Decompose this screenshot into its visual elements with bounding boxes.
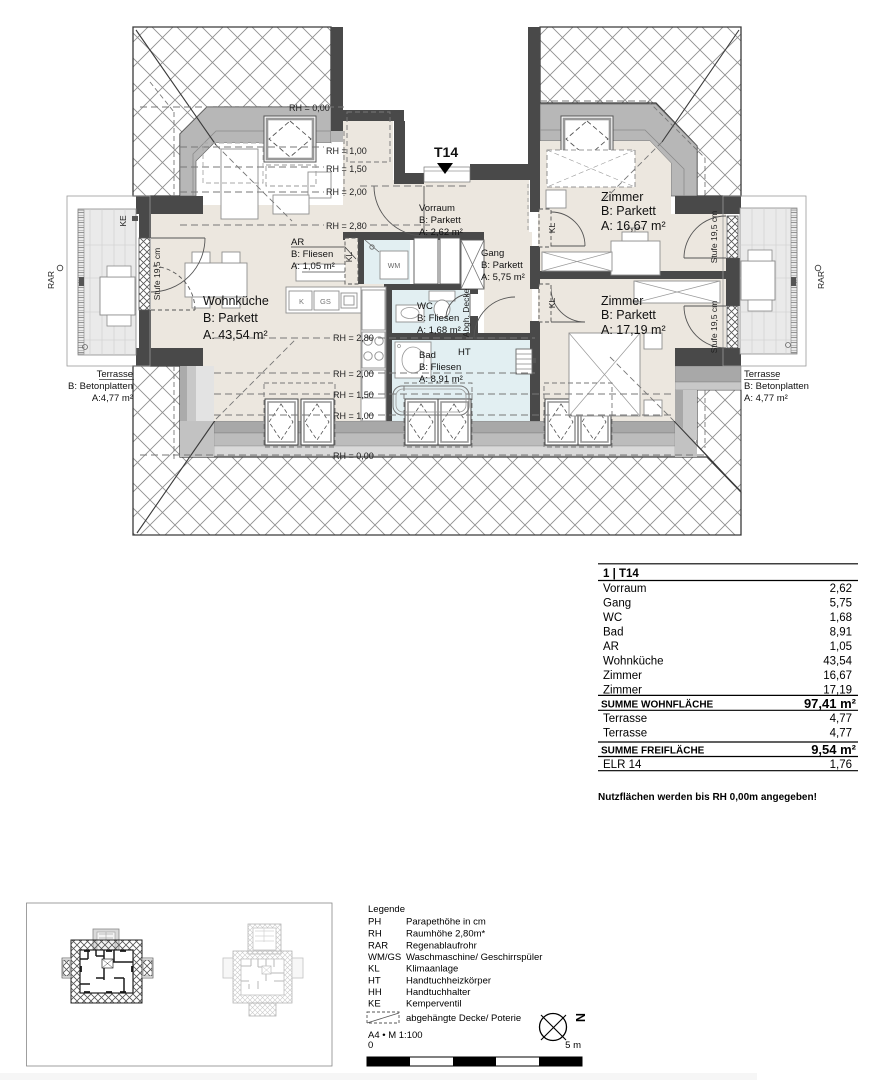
svg-text:N: N xyxy=(573,1013,587,1022)
svg-text:B: Parkett: B: Parkett xyxy=(203,311,258,325)
svg-text:Kemperventil: Kemperventil xyxy=(406,999,461,1010)
svg-text:KE: KE xyxy=(368,999,381,1010)
svg-text:KL: KL xyxy=(368,964,380,975)
svg-text:1,76: 1,76 xyxy=(830,759,852,771)
svg-text:ELR 14: ELR 14 xyxy=(603,759,642,771)
svg-text:Terrasse: Terrasse xyxy=(603,728,647,740)
svg-text:T14: T14 xyxy=(434,144,458,160)
svg-text:RH = 1,00: RH = 1,00 xyxy=(326,146,367,156)
svg-text:Terrasse: Terrasse xyxy=(603,713,647,725)
svg-text:B: Fliesen: B: Fliesen xyxy=(419,362,461,373)
svg-text:A: 1,68 m²: A: 1,68 m² xyxy=(417,325,461,336)
svg-text:WC: WC xyxy=(603,612,622,624)
svg-text:Gang: Gang xyxy=(603,598,631,610)
svg-text:Zimmer: Zimmer xyxy=(601,294,643,308)
svg-text:SUMME FREIFLÄCHE: SUMME FREIFLÄCHE xyxy=(601,744,705,757)
svg-text:RH = 0,00: RH = 0,00 xyxy=(333,451,374,461)
svg-text:Vorraum: Vorraum xyxy=(603,583,646,595)
svg-text:RH = 1,50: RH = 1,50 xyxy=(326,164,367,174)
svg-text:8,91: 8,91 xyxy=(830,627,852,639)
svg-text:Raumhöhe 2,80m*: Raumhöhe 2,80m* xyxy=(406,929,486,940)
svg-text:1,68: 1,68 xyxy=(830,612,852,624)
svg-text:Stufe 19,5 cm: Stufe 19,5 cm xyxy=(709,211,719,263)
svg-text:Wohnküche: Wohnküche xyxy=(603,656,664,668)
svg-text:Bad: Bad xyxy=(603,627,623,639)
svg-text:Nutzflächen werden bis RH 0,00: Nutzflächen werden bis RH 0,00m angegebe… xyxy=(598,792,817,803)
svg-text:5,75: 5,75 xyxy=(830,598,852,610)
svg-text:Vorraum: Vorraum xyxy=(419,203,455,214)
svg-text:GS: GS xyxy=(320,297,331,306)
svg-text:abgehängte Decke/ Poterie: abgehängte Decke/ Poterie xyxy=(406,1013,521,1024)
svg-text:RH = 1,00: RH = 1,00 xyxy=(333,411,374,421)
svg-text:A: 2,62 m²: A: 2,62 m² xyxy=(419,227,463,238)
svg-text:B: Betonplatten: B: Betonplatten xyxy=(68,381,133,392)
svg-text:Terrasse: Terrasse xyxy=(97,369,133,380)
svg-text:Klimaanlage: Klimaanlage xyxy=(406,964,458,975)
svg-text:PH: PH xyxy=(368,917,381,928)
svg-text:HT: HT xyxy=(368,976,381,987)
svg-text:0: 0 xyxy=(368,1040,373,1051)
svg-text:Bad: Bad xyxy=(419,350,436,361)
svg-text:RH = 2,80: RH = 2,80 xyxy=(326,221,367,231)
svg-text:A: 8,91 m²: A: 8,91 m² xyxy=(419,374,463,385)
svg-text:Handtuchhalter: Handtuchhalter xyxy=(406,987,470,998)
svg-text:HH: HH xyxy=(368,987,382,998)
svg-text:KL: KL xyxy=(547,298,557,309)
svg-text:RAR: RAR xyxy=(816,271,826,289)
svg-text:RH = 2,00: RH = 2,00 xyxy=(326,187,367,197)
svg-text:9,54 m²: 9,54 m² xyxy=(811,742,856,757)
svg-text:RH = 2,80: RH = 2,80 xyxy=(333,333,374,343)
svg-text:B: Parkett: B: Parkett xyxy=(601,308,656,322)
svg-text:4,77: 4,77 xyxy=(830,713,852,725)
svg-text:2,62: 2,62 xyxy=(830,583,852,595)
svg-text:A:4,77 m²: A:4,77 m² xyxy=(92,393,133,404)
svg-text:5 m: 5 m xyxy=(565,1040,581,1051)
svg-text:17,19: 17,19 xyxy=(823,685,852,697)
svg-text:Waschmaschine/ Geschirrspüler: Waschmaschine/ Geschirrspüler xyxy=(406,952,542,963)
svg-text:WM: WM xyxy=(388,263,401,270)
svg-text:KE: KE xyxy=(118,215,128,227)
svg-text:Zimmer: Zimmer xyxy=(603,670,642,682)
svg-text:WC: WC xyxy=(417,301,433,312)
svg-text:Stufe 19,5 cm: Stufe 19,5 cm xyxy=(709,301,719,353)
svg-text:Regenablaufrohr: Regenablaufrohr xyxy=(406,941,477,952)
svg-text:RH = 1,50: RH = 1,50 xyxy=(333,390,374,400)
svg-text:RH = 2,00: RH = 2,00 xyxy=(333,369,374,379)
svg-text:Gang: Gang xyxy=(481,248,504,259)
svg-text:1 | T14: 1 | T14 xyxy=(603,568,639,580)
svg-text:B: Fliesen: B: Fliesen xyxy=(291,249,333,260)
svg-text:RH: RH xyxy=(368,929,382,940)
svg-text:Stufe 19,5 cm: Stufe 19,5 cm xyxy=(152,248,162,300)
svg-text:97,41 m²: 97,41 m² xyxy=(804,696,857,711)
svg-text:Legende: Legende xyxy=(368,904,405,915)
svg-text:A4 • M 1:100: A4 • M 1:100 xyxy=(368,1030,423,1041)
svg-text:K: K xyxy=(299,297,304,306)
svg-text:B: Parkett: B: Parkett xyxy=(601,204,656,218)
svg-text:A: 1,05 m²: A: 1,05 m² xyxy=(291,261,335,272)
svg-text:Parapethöhe in cm: Parapethöhe in cm xyxy=(406,917,486,928)
svg-text:AR: AR xyxy=(291,237,304,248)
svg-text:43,54: 43,54 xyxy=(823,656,852,668)
svg-text:B: Parkett: B: Parkett xyxy=(481,260,523,271)
svg-text:Zimmer: Zimmer xyxy=(601,190,643,204)
svg-text:KL: KL xyxy=(547,223,557,234)
svg-text:RAR: RAR xyxy=(46,271,56,289)
svg-text:A: 5,75 m²: A: 5,75 m² xyxy=(481,272,525,283)
svg-text:AR: AR xyxy=(603,641,619,653)
svg-text:WM/GS: WM/GS xyxy=(368,952,401,963)
svg-text:16,67: 16,67 xyxy=(823,670,852,682)
svg-text:1,05: 1,05 xyxy=(830,641,852,653)
svg-text:Handtuchheizkörper: Handtuchheizkörper xyxy=(406,976,491,987)
svg-text:KL: KL xyxy=(344,252,354,263)
svg-text:Wohnküche: Wohnküche xyxy=(203,294,269,308)
svg-text:B: Parkett: B: Parkett xyxy=(419,215,461,226)
svg-text:4,77: 4,77 xyxy=(830,728,852,740)
svg-text:Abgh. Decke: Abgh. Decke xyxy=(461,288,471,337)
svg-text:A: 16,67 m²: A: 16,67 m² xyxy=(601,219,666,233)
svg-text:HT: HT xyxy=(458,347,471,358)
svg-text:Zimmer: Zimmer xyxy=(603,685,642,697)
svg-text:B: Fliesen: B: Fliesen xyxy=(417,313,459,324)
svg-text:SUMME WOHNFLÄCHE: SUMME WOHNFLÄCHE xyxy=(601,698,714,711)
svg-text:A: 17,19 m²: A: 17,19 m² xyxy=(601,323,666,337)
svg-text:B: Betonplatten: B: Betonplatten xyxy=(744,381,809,392)
svg-text:RAR: RAR xyxy=(368,941,388,952)
svg-text:RH = 0,00: RH = 0,00 xyxy=(289,103,330,113)
svg-text:A: 4,77 m²: A: 4,77 m² xyxy=(744,393,788,404)
svg-text:Terrasse: Terrasse xyxy=(744,369,780,380)
svg-text:A: 43,54 m²: A: 43,54 m² xyxy=(203,328,268,342)
